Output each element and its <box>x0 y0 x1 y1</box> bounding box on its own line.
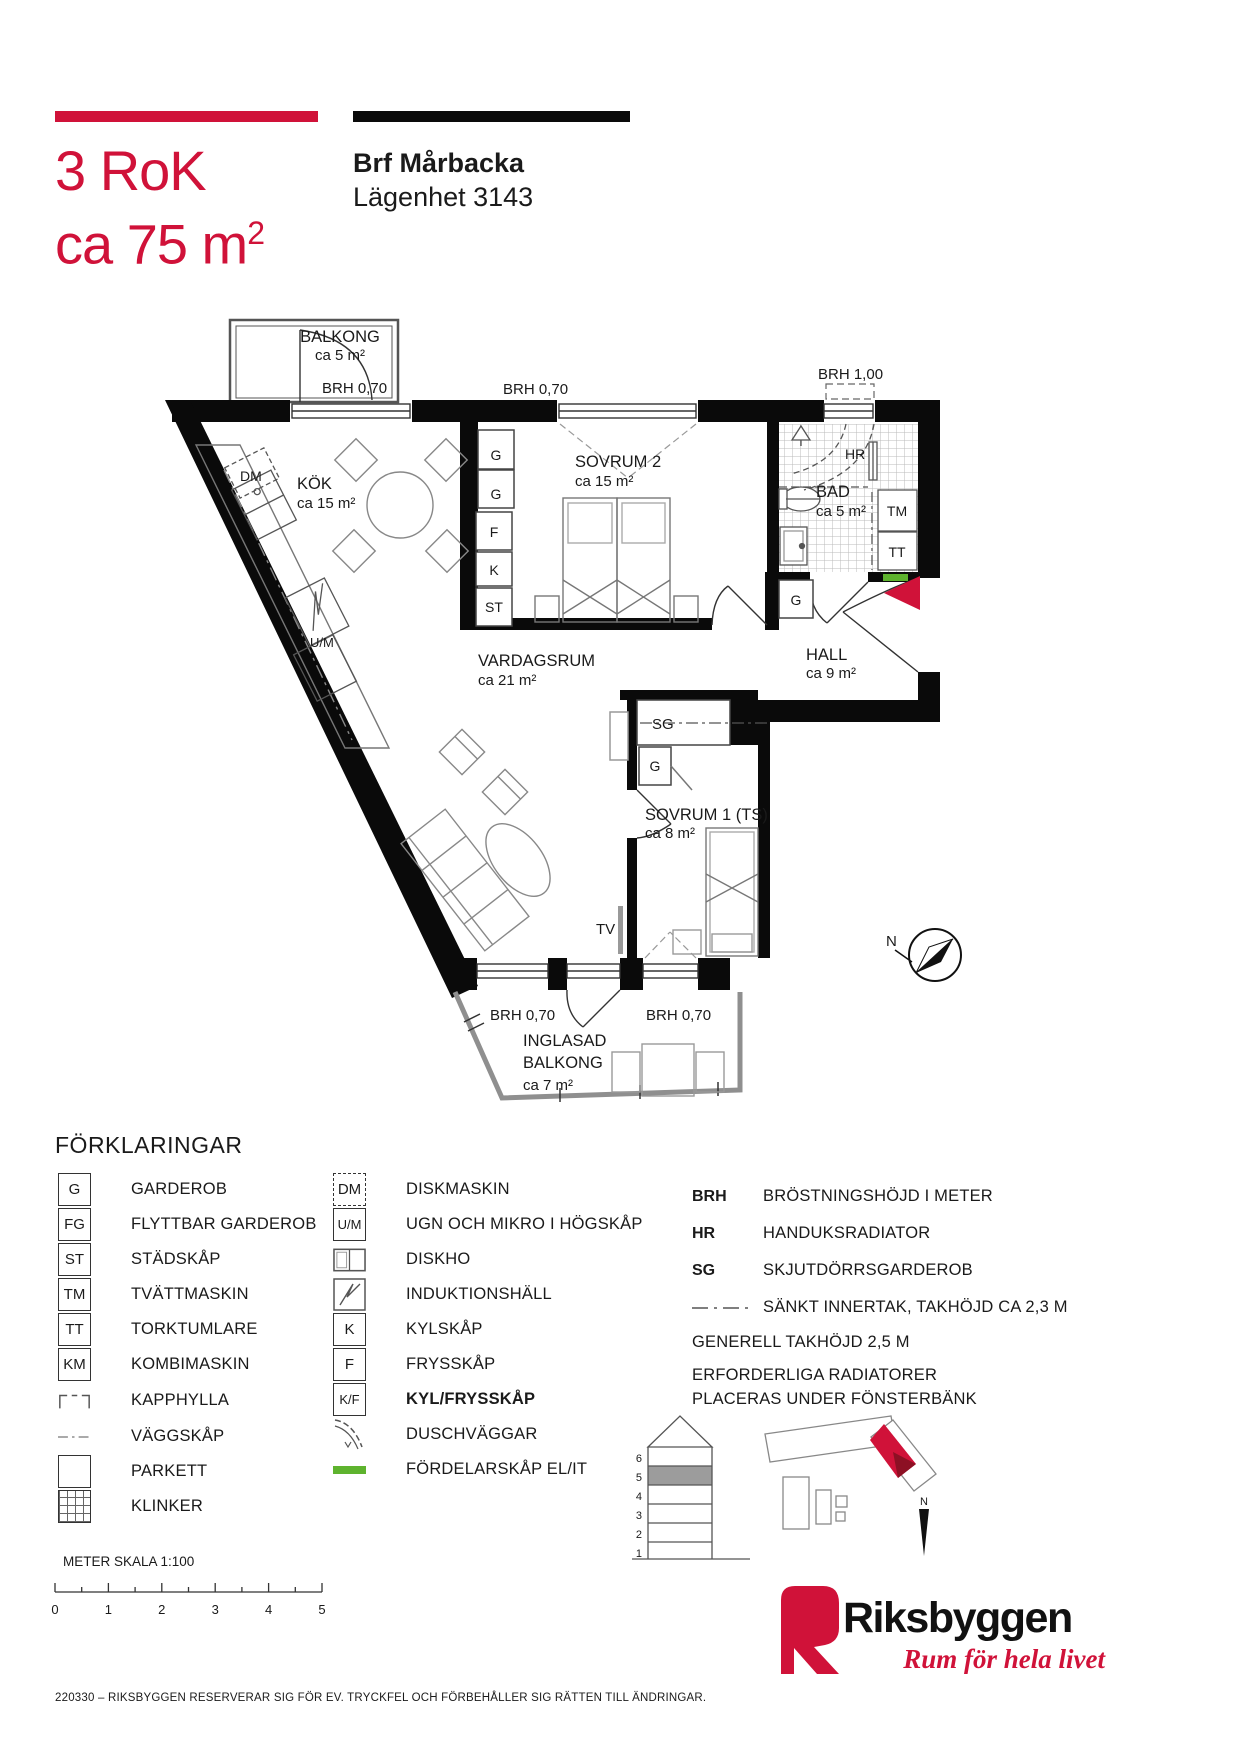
hall-label: HALL <box>806 646 847 664</box>
svg-text:2: 2 <box>636 1529 642 1541</box>
legend-row: U/MUGN OCH MIKRO I HÖGSKÅP <box>333 1207 643 1242</box>
kylskap-symbol: K <box>333 1313 366 1346</box>
project-name: Brf Mårbacka <box>353 146 533 180</box>
vaggskap-icon <box>58 1433 91 1441</box>
distribution-cabinet-symbol <box>883 574 908 581</box>
compass-icon: N <box>886 929 961 981</box>
legend-column-1: GGARDEROB FGFLYTTBAR GARDEROB STSTÄDSKÅP… <box>58 1172 317 1524</box>
single-bed <box>673 828 758 956</box>
brh-bottom-right: BRH 0,70 <box>646 1007 711 1024</box>
svg-text:3: 3 <box>212 1602 219 1617</box>
parkett-icon <box>58 1455 91 1488</box>
legend-row: SGSKJUTDÖRRSGARDEROB <box>692 1252 1068 1289</box>
legend-column-2: DMDISKMASKIN U/MUGN OCH MIKRO I HÖGSKÅP … <box>333 1172 643 1487</box>
st-code: ST <box>485 599 503 615</box>
ugn-mikro-symbol: U/M <box>333 1208 366 1241</box>
tv-panel <box>618 906 623 954</box>
floorplan-page: 3 RoK ca 75 m2 Brf Mårbacka Lägenhet 314… <box>0 0 1240 1754</box>
duschvaggar-icon <box>333 1418 366 1451</box>
title-rooms: 3 RoK <box>55 140 264 202</box>
legend-row: VÄGGSKÅP <box>58 1419 317 1454</box>
brand-tagline: Rum för hela livet <box>845 1644 1105 1675</box>
legend-column-3: BRHBRÖSTNINGSHÖJD I METER HRHANDUKSRADIA… <box>692 1178 1068 1326</box>
legend-row: FFRYSSKÅP <box>333 1347 643 1382</box>
apartment-number: Lägenhet 3143 <box>353 180 533 214</box>
vardagsrum-label: VARDAGSRUM <box>478 652 595 670</box>
bad-label: BAD <box>816 483 850 501</box>
svg-text:4: 4 <box>265 1602 272 1617</box>
site-diagrams: 6 5 4 3 2 1 N <box>620 1400 950 1570</box>
bad-area: ca 5 m² <box>816 503 866 520</box>
legend-row: KMKOMBIMASKIN <box>58 1347 317 1382</box>
red-accent-bar <box>55 111 318 122</box>
g-hall-code: G <box>791 592 802 608</box>
stadskap-symbol: ST <box>58 1243 91 1276</box>
brand-name: Riksbyggen <box>843 1594 1072 1643</box>
legend-row: DUSCHVÄGGAR <box>333 1417 643 1452</box>
hr-abbr: HR <box>692 1225 763 1243</box>
legend-row: BRHBRÖSTNINGSHÖJD I METER <box>692 1178 1068 1215</box>
brh-balkong: BRH 0,70 <box>322 380 387 397</box>
sg-code: SG <box>652 716 674 733</box>
g1-code: G <box>491 447 502 463</box>
brh-bottom-left: BRH 0,70 <box>490 1007 555 1024</box>
legend-row: SÄNKT INNERTAK, TAKHÖJD CA 2,3 M <box>692 1289 1068 1326</box>
double-bed <box>535 498 698 622</box>
brh-bad: BRH 1,00 <box>818 366 883 383</box>
tm-code: TM <box>887 503 907 519</box>
frysskap-symbol: F <box>333 1348 366 1381</box>
sovrum2-area: ca 15 m² <box>575 473 633 490</box>
legend-row: INDUKTIONSHÄLL <box>333 1277 643 1312</box>
building-elevation: 6 5 4 3 2 1 <box>632 1416 750 1560</box>
legend-row: TTTORKTUMLARE <box>58 1312 317 1347</box>
site-north-arrow-icon: N <box>919 1496 929 1556</box>
legend-row: GGARDEROB <box>58 1172 317 1207</box>
project-subtitle: Brf Mårbacka Lägenhet 3143 <box>353 146 533 214</box>
diskmaskin-symbol: DM <box>333 1173 366 1206</box>
sg-abbr: SG <box>692 1262 763 1280</box>
legend-row: K/FKYL/FRYSSKÅP <box>333 1382 643 1417</box>
tvattmaskin-symbol: TM <box>58 1278 91 1311</box>
svg-text:N: N <box>886 933 897 950</box>
legend-row: KLINKER <box>58 1489 317 1524</box>
scale-label: METER SKALA 1:100 <box>63 1554 194 1569</box>
apartment-size-title: 3 RoK ca 75 m2 <box>55 140 264 276</box>
armchairs <box>439 729 527 814</box>
svg-text:2: 2 <box>158 1602 165 1617</box>
hr-code: HR <box>845 446 865 462</box>
kyl-frys-symbol: K/F <box>333 1383 366 1416</box>
balkong-area: ca 5 m² <box>315 347 365 364</box>
svg-text:5: 5 <box>318 1602 325 1617</box>
fordelarskap-icon <box>333 1466 366 1474</box>
svg-text:3: 3 <box>636 1510 642 1522</box>
g2-code: G <box>491 486 502 502</box>
dm-code: DM <box>240 468 262 484</box>
riksbyggen-logo-icon <box>781 1586 839 1676</box>
k-code: K <box>489 562 499 578</box>
svg-text:1: 1 <box>105 1602 112 1617</box>
vardagsrum-area: ca 21 m² <box>478 672 536 689</box>
legend-row: HRHANDUKSRADIATOR <box>692 1215 1068 1252</box>
legend-row: KKYLSKÅP <box>333 1312 643 1347</box>
tv-label: TV <box>596 921 615 938</box>
klinker-icon <box>58 1490 91 1523</box>
sovrum1-area: ca 8 m² <box>645 825 695 842</box>
brh-abbr: BRH <box>692 1188 763 1206</box>
kok-label: KÖK <box>297 475 332 493</box>
kombimaskin-symbol: KM <box>58 1348 91 1381</box>
diskho-icon <box>333 1248 366 1272</box>
legend-row: FÖRDELARSKÅP EL/IT <box>333 1452 643 1487</box>
kok-area: ca 15 m² <box>297 495 355 512</box>
inglasad-area: ca 7 m² <box>523 1077 573 1094</box>
brh-top-center: BRH 0,70 <box>503 381 568 398</box>
legend-row: PARKETT <box>58 1454 317 1489</box>
inglasad-line2: BALKONG <box>523 1054 603 1072</box>
sovrum1-label: SOVRUM 1 (TS) <box>645 806 768 824</box>
tt-code: TT <box>888 544 906 560</box>
g-sovrum1-code: G <box>650 758 661 774</box>
title-area: ca 75 m2 <box>55 202 264 276</box>
sovrum2-label: SOVRUM 2 <box>575 453 661 471</box>
svg-text:1: 1 <box>636 1548 642 1560</box>
kapphylla-icon <box>58 1391 91 1411</box>
ceiling-height-note: GENERELL TAKHÖJD 2,5 M <box>692 1330 1022 1354</box>
legend-row: FGFLYTTBAR GARDEROB <box>58 1207 317 1242</box>
black-accent-bar <box>353 111 630 122</box>
legend-row: TMTVÄTTMASKIN <box>58 1277 317 1312</box>
disclaimer: 220330 – RIKSBYGGEN RESERVERAR SIG FÖR E… <box>55 1692 706 1704</box>
balcony-table-set <box>612 1044 724 1096</box>
coffee-table <box>473 812 563 908</box>
hall-area: ca 9 m² <box>806 665 856 682</box>
legend-row: DMDISKMASKIN <box>333 1172 643 1207</box>
inglasad-line1: INGLASAD <box>523 1032 607 1050</box>
legend-row: DISKHO <box>333 1242 643 1277</box>
svg-text:5: 5 <box>636 1472 642 1484</box>
f-code: F <box>490 524 499 540</box>
svg-text:0: 0 <box>51 1602 58 1617</box>
torktumlare-symbol: TT <box>58 1313 91 1346</box>
svg-text:4: 4 <box>636 1491 642 1503</box>
um-code: U/M <box>310 635 334 650</box>
legend-title: FÖRKLARINGAR <box>55 1132 242 1159</box>
legend-row: STSTÄDSKÅP <box>58 1242 317 1277</box>
induktionshall-icon <box>333 1278 366 1311</box>
floor-plan-drawing: N BALKONG ca 5 m² BRH 0,70 BRH 0,70 BRH … <box>0 280 1000 1120</box>
balkong-label: BALKONG <box>300 328 380 346</box>
svg-text:N: N <box>920 1496 928 1508</box>
flyttbar-garderob-symbol: FG <box>58 1208 91 1241</box>
scale-bar: METER SKALA 1:100 0 1 2 3 4 5 <box>47 1552 345 1624</box>
legend-row: KAPPHYLLA <box>58 1382 317 1419</box>
svg-text:6: 6 <box>636 1453 642 1465</box>
sankt-innertak-icon <box>692 1299 763 1317</box>
site-plan <box>765 1416 936 1529</box>
garderob-symbol: G <box>58 1173 91 1206</box>
